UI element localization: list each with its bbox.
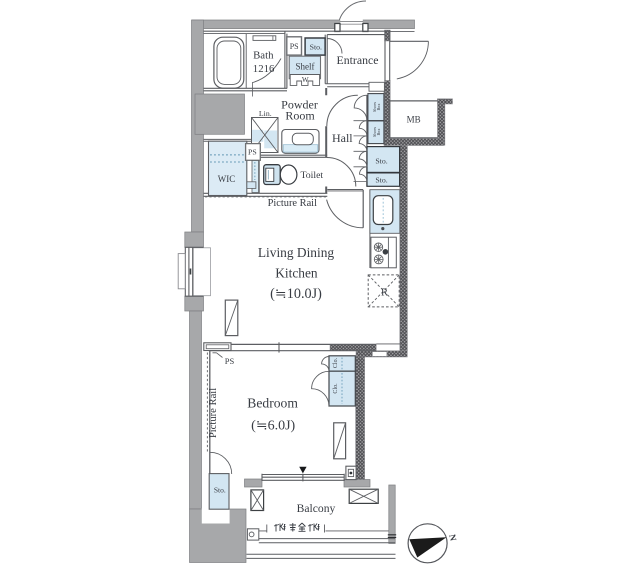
- svg-text:Room: Room: [285, 109, 315, 123]
- svg-text:Clo.: Clo.: [333, 383, 339, 394]
- svg-text:Toilet: Toilet: [300, 170, 323, 181]
- svg-text:R: R: [381, 288, 388, 299]
- svg-text:MB: MB: [407, 115, 421, 125]
- svg-text:1216: 1216: [253, 63, 275, 75]
- svg-text:Bedroom: Bedroom: [247, 396, 298, 411]
- svg-text:Balcony: Balcony: [297, 502, 336, 515]
- svg-text:PS: PS: [248, 148, 257, 157]
- svg-text:Clo.: Clo.: [333, 357, 339, 368]
- svg-text:(≒6.0J): (≒6.0J): [251, 418, 295, 433]
- svg-text:Picture Rail: Picture Rail: [268, 198, 317, 209]
- svg-text:Sto.: Sto.: [375, 156, 387, 165]
- svg-text:Lin.: Lin.: [259, 109, 272, 118]
- svg-text:Hall: Hall: [332, 131, 353, 145]
- svg-text:Box: Box: [376, 103, 381, 111]
- svg-text:Shelf: Shelf: [296, 61, 315, 71]
- svg-text:WIC: WIC: [218, 174, 236, 184]
- svg-text:Sto.: Sto.: [375, 176, 387, 185]
- svg-text:Entrance: Entrance: [337, 53, 379, 67]
- svg-text:Sto.: Sto.: [310, 42, 322, 51]
- svg-text:Picture Rail: Picture Rail: [208, 388, 219, 438]
- svg-text:W: W: [302, 76, 309, 84]
- svg-text:Sto.: Sto.: [214, 486, 226, 495]
- svg-text:Kitchen: Kitchen: [275, 266, 318, 281]
- svg-text:Living Dining: Living Dining: [258, 245, 335, 260]
- svg-text:PS: PS: [225, 356, 235, 366]
- svg-text:(≒10.0J): (≒10.0J): [270, 286, 322, 302]
- svg-text:PS: PS: [290, 42, 299, 51]
- svg-text:Bath: Bath: [253, 50, 274, 62]
- svg-text:Box: Box: [376, 128, 381, 136]
